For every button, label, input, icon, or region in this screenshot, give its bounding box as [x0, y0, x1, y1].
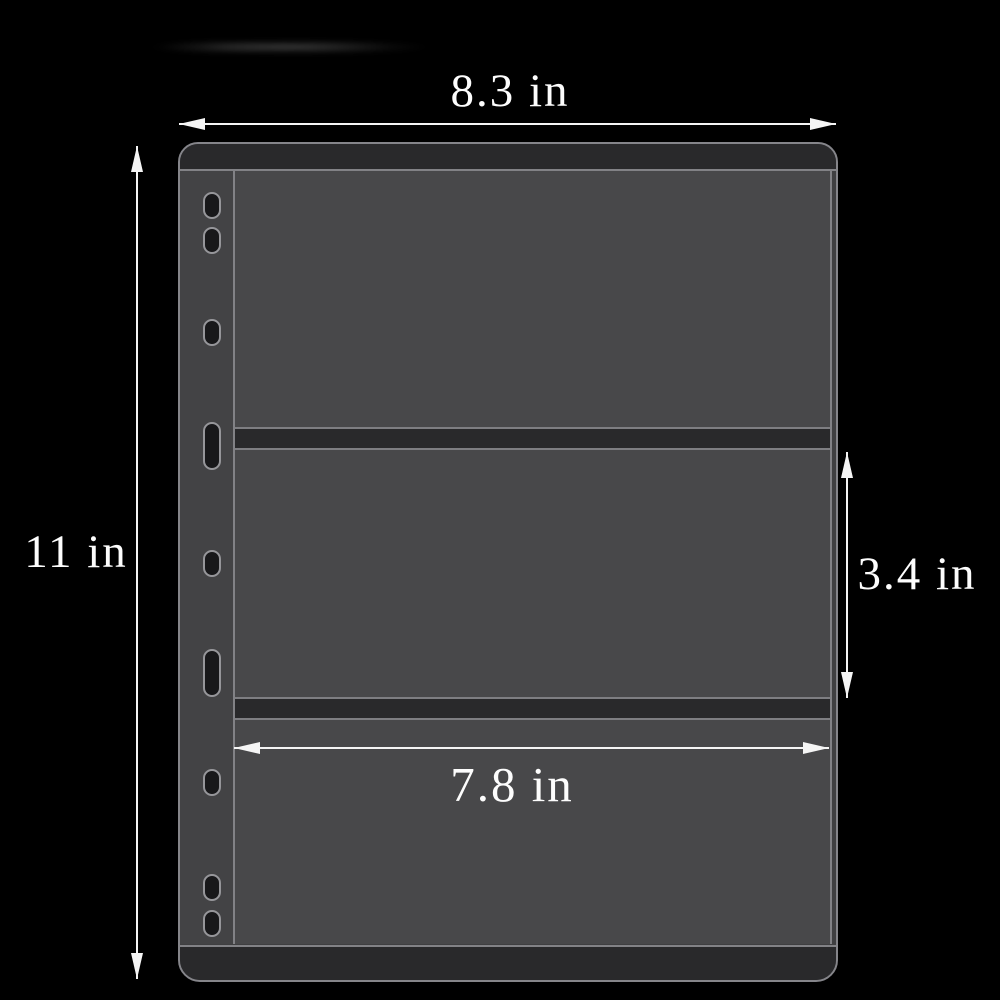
- binder-hole: [203, 550, 221, 577]
- photo-glare: [118, 36, 474, 58]
- binder-hole: [203, 769, 221, 796]
- pocket-width-dimension-label: 7.8 in: [382, 759, 642, 810]
- binder-hole: [203, 227, 221, 254]
- height-dimension-arrow: [136, 146, 138, 979]
- page-bottom-band: [180, 945, 836, 980]
- pocket-width-dimension-arrow: [234, 747, 829, 749]
- pocket-row-1: [235, 171, 830, 427]
- pocket-row-3: [235, 720, 830, 944]
- pocket-row-2: [235, 450, 830, 697]
- pocket-area: [235, 171, 832, 944]
- binder-hole: [203, 192, 221, 219]
- width-dimension-label: 8.3 in: [380, 67, 640, 116]
- binder-hole: [203, 874, 221, 901]
- pocket-divider-2: [235, 697, 830, 720]
- binder-slot-hole: [203, 649, 221, 697]
- height-dimension-label: 11 in: [18, 528, 134, 577]
- binder-slot-hole: [203, 422, 221, 470]
- page-top-band: [180, 144, 836, 171]
- pocket-height-dimension-label: 3.4 in: [852, 550, 982, 599]
- product-dimension-diagram: 8.3 in 11 in 3.4 in 7.8 in: [0, 0, 1000, 1000]
- binder-hole: [203, 910, 221, 937]
- binder-page: [178, 142, 838, 982]
- width-dimension-arrow: [179, 123, 836, 125]
- pocket-divider-1: [235, 427, 830, 450]
- binder-hole: [203, 319, 221, 346]
- pocket-height-dimension-arrow: [846, 452, 848, 698]
